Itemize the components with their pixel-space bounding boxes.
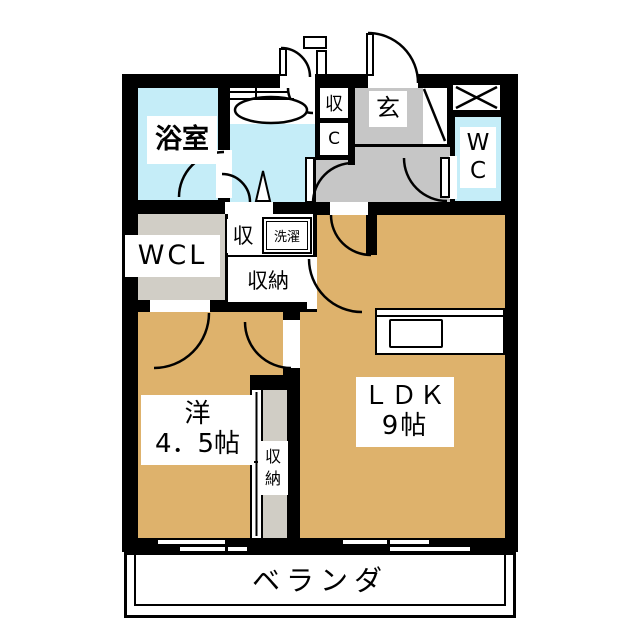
floor-plan: 収 C 収納 洗濯 (0, 0, 640, 640)
wc-label-line2: C (470, 158, 486, 186)
western-floor-notch (250, 312, 283, 375)
pipe-space-box (453, 85, 500, 110)
washroom-counter (230, 88, 315, 124)
wc-door-opening (449, 156, 457, 199)
bathroom-label-text: 浴室 (155, 124, 209, 155)
western-window-bar-1 (157, 539, 227, 545)
strip-closet-box: C (320, 123, 348, 155)
meter-box (303, 36, 327, 49)
shoe-cabinet (423, 88, 447, 144)
wcl-door-opening (150, 300, 210, 312)
closet-vertical-label-line2: 納 (265, 468, 281, 490)
laundry-pan-inner: 洗濯 (266, 221, 308, 250)
passage-connector (348, 165, 355, 202)
closet-vertical-label-line1: 収 (265, 446, 281, 468)
hall-floor (355, 147, 450, 202)
western-room-label-name: 洋 (184, 400, 210, 430)
ldk-floor-notch (300, 312, 317, 538)
wc-label-line1: W (467, 130, 490, 158)
ldk-window-tick (387, 540, 390, 552)
bath-door-opening (216, 150, 232, 198)
passage-door-leaf (305, 157, 315, 203)
mid-storage-label: 収納 (247, 265, 289, 295)
meter-bar (316, 50, 327, 76)
nook-door-opening (225, 202, 273, 214)
nook-storage-label: 収 (227, 219, 259, 253)
strip-storage-box: 収 (320, 88, 348, 118)
service-door-leaf (279, 48, 287, 76)
ldk-window-bar-1 (342, 539, 430, 545)
wc-label: W C (460, 127, 496, 188)
mid-storage-floor: 収納 (228, 257, 308, 302)
veranda-label-text: ベランダ (252, 565, 388, 597)
laundry-pan: 洗濯 (262, 217, 312, 254)
western-ldk-opening (283, 320, 300, 368)
nook-storage-label-text: 収 (233, 224, 254, 248)
entrance-door-leaf (366, 33, 374, 76)
wcl-label-text: WCL (138, 240, 208, 271)
bathroom-label: 浴室 (147, 116, 217, 164)
genkan-label: 玄 (369, 91, 407, 127)
western-room-label-size: 4．5帖 (155, 430, 240, 460)
genkan-label-text: 玄 (376, 95, 400, 123)
wc-door-leaf (440, 157, 450, 198)
ldk-label-name: ＬＤＫ (363, 382, 447, 412)
service-door-opening (280, 74, 315, 88)
hall-ldk-opening (330, 202, 368, 215)
passage-floor (316, 160, 348, 202)
hall-ldk-door-leaf (366, 215, 377, 255)
washroom-floor (230, 124, 315, 202)
laundry-label: 洗濯 (274, 226, 300, 245)
kitchen-sink (389, 319, 443, 348)
ldk-label-size: 9帖 (382, 412, 429, 442)
western-window-tick (225, 540, 228, 552)
western-room-label: 洋 4．5帖 (141, 395, 254, 465)
wcl-label: WCL (125, 235, 220, 277)
closet-vertical-label: 収 納 (258, 441, 288, 495)
strip-closet-label: C (328, 129, 340, 149)
entrance-opening (368, 74, 418, 88)
ldk-label: ＬＤＫ 9帖 (356, 377, 454, 447)
strip-storage-label: 収 (325, 90, 343, 116)
veranda-label: ベランダ (200, 560, 440, 602)
storage-ldk-opening (307, 257, 317, 309)
